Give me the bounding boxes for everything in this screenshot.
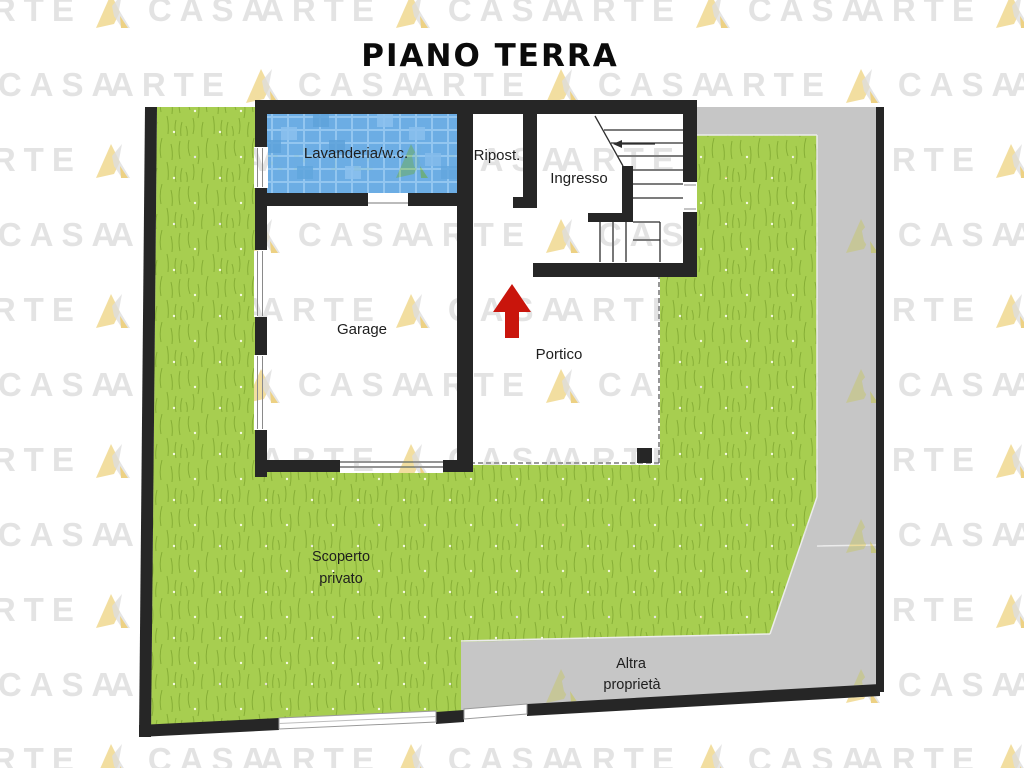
room-label-garage: Garage	[337, 321, 387, 338]
boundary-wall-right	[876, 107, 884, 692]
room-label-ingresso: Ingresso	[550, 170, 608, 187]
outdoor-label-scoperto-line1: Scoperto	[312, 549, 370, 565]
boundary-wall-bottom-b	[436, 710, 464, 724]
entrance-door-opening	[683, 182, 697, 212]
portico-pillar	[637, 448, 652, 463]
room-label-lavanderia: Lavanderia/w.c.	[304, 145, 408, 162]
floor-plan-page: Lavanderia/w.c. Ripost. Ingresso Garage …	[0, 0, 1024, 768]
room-label-ripostiglio: Ripost.	[474, 147, 521, 164]
outdoor-label-altra-line2: proprietà	[603, 677, 661, 693]
garage-door-opening	[340, 459, 443, 473]
page-title: PIANO TERRA	[0, 38, 980, 74]
outdoor-label-scoperto-line2: privato	[319, 571, 363, 587]
laundry-door-opening	[368, 193, 408, 206]
room-label-portico: Portico	[536, 346, 583, 363]
floor-plan-canvas: Lavanderia/w.c. Ripost. Ingresso Garage …	[0, 0, 1024, 768]
outdoor-label-altra-line1: Altra	[616, 656, 647, 672]
storage-door-opening	[477, 197, 513, 208]
